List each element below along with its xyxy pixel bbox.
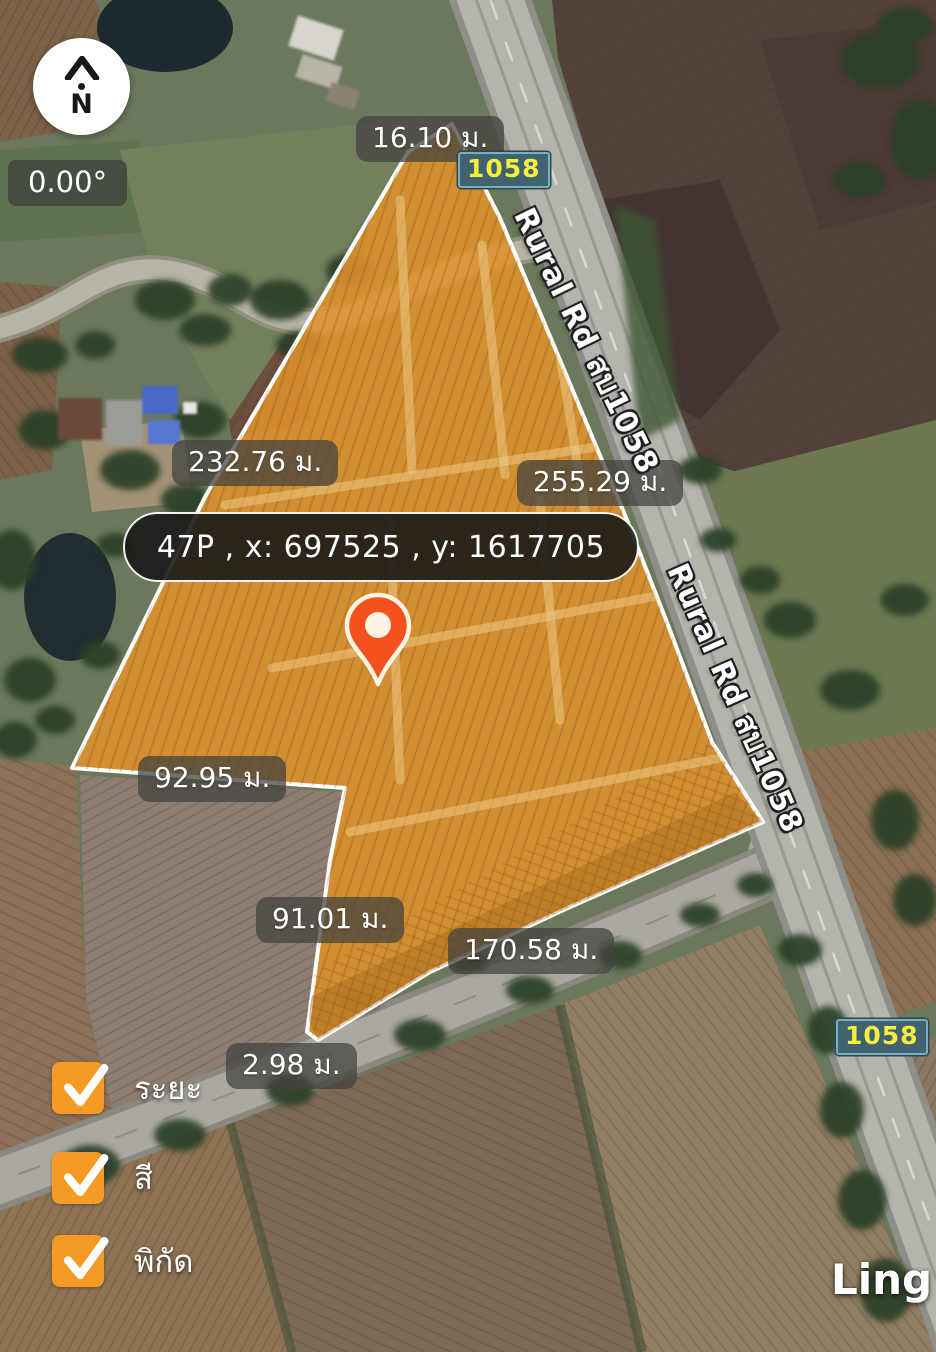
color-checkbox[interactable] <box>52 1152 104 1204</box>
measurement-label-bottom-tiny: 2.98 ม. <box>226 1043 357 1089</box>
check-icon <box>56 1056 114 1114</box>
check-icon <box>56 1146 114 1204</box>
legend-row-color: สี <box>52 1152 153 1204</box>
measurement-label-lower-left: 91.01 ม. <box>256 897 404 943</box>
legend-label-coordinates: พิกัด <box>134 1236 193 1286</box>
compass-north-label: N <box>70 91 93 118</box>
measurement-label-mid-left: 92.95 ม. <box>138 756 286 802</box>
check-icon <box>56 1229 114 1287</box>
place-label: Ling <box>831 1255 932 1304</box>
distance-checkbox[interactable] <box>52 1062 104 1114</box>
legend-label-color: สี <box>134 1153 153 1203</box>
legend-row-distance: ระยะ <box>52 1062 202 1114</box>
compass-button[interactable]: N <box>33 38 130 135</box>
measurement-label-bottom-right: 170.58 ม. <box>448 928 614 974</box>
north-arrow-icon <box>64 56 100 80</box>
map-canvas: N 0.00° 16.10 ม. 232.76 ม. 255.29 ม. 92.… <box>0 0 936 1352</box>
route-shield-1058-bottom: 1058 <box>836 1019 928 1055</box>
route-shield-1058-top: 1058 <box>458 152 550 188</box>
coordinates-checkbox[interactable] <box>52 1235 104 1287</box>
satellite-basemap[interactable] <box>0 0 936 1352</box>
legend-row-coordinates: พิกัด <box>52 1235 193 1287</box>
bearing-readout: 0.00° <box>8 160 127 206</box>
measurement-label-upper-left: 232.76 ม. <box>172 440 338 486</box>
legend-label-distance: ระยะ <box>134 1063 202 1113</box>
utm-coordinate-pill: 47P , x: 697525 , y: 1617705 <box>123 512 639 582</box>
